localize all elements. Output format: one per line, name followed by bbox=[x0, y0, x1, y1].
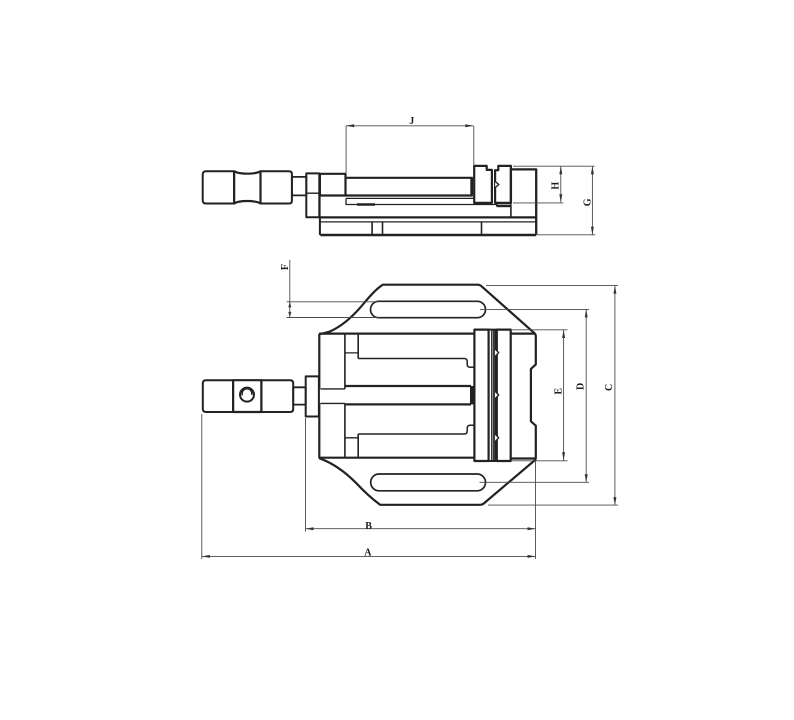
svg-text:H: H bbox=[551, 182, 562, 190]
svg-text:G: G bbox=[583, 198, 594, 206]
svg-text:A: A bbox=[364, 547, 372, 558]
svg-text:E: E bbox=[554, 388, 565, 395]
svg-text:D: D bbox=[576, 383, 587, 390]
svg-text:C: C bbox=[604, 384, 615, 391]
svg-text:B: B bbox=[365, 521, 372, 532]
svg-text:J: J bbox=[409, 116, 414, 127]
svg-text:F: F bbox=[280, 264, 291, 270]
